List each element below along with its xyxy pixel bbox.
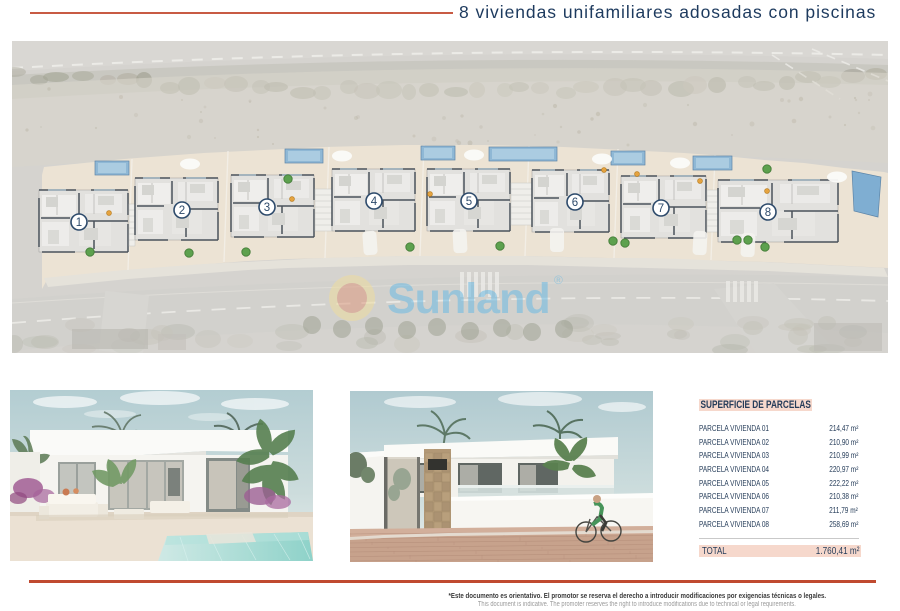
svg-text:5: 5 — [466, 196, 472, 208]
svg-text:8: 8 — [765, 207, 771, 219]
svg-text:7: 7 — [658, 203, 664, 215]
svg-text:4: 4 — [371, 196, 378, 208]
svg-text:6: 6 — [572, 197, 578, 209]
svg-text:Sunland: Sunland — [387, 275, 550, 323]
svg-text:3: 3 — [264, 202, 270, 214]
svg-text:2: 2 — [179, 205, 185, 217]
svg-text:®: ® — [554, 273, 563, 287]
svg-text:1: 1 — [76, 217, 82, 229]
